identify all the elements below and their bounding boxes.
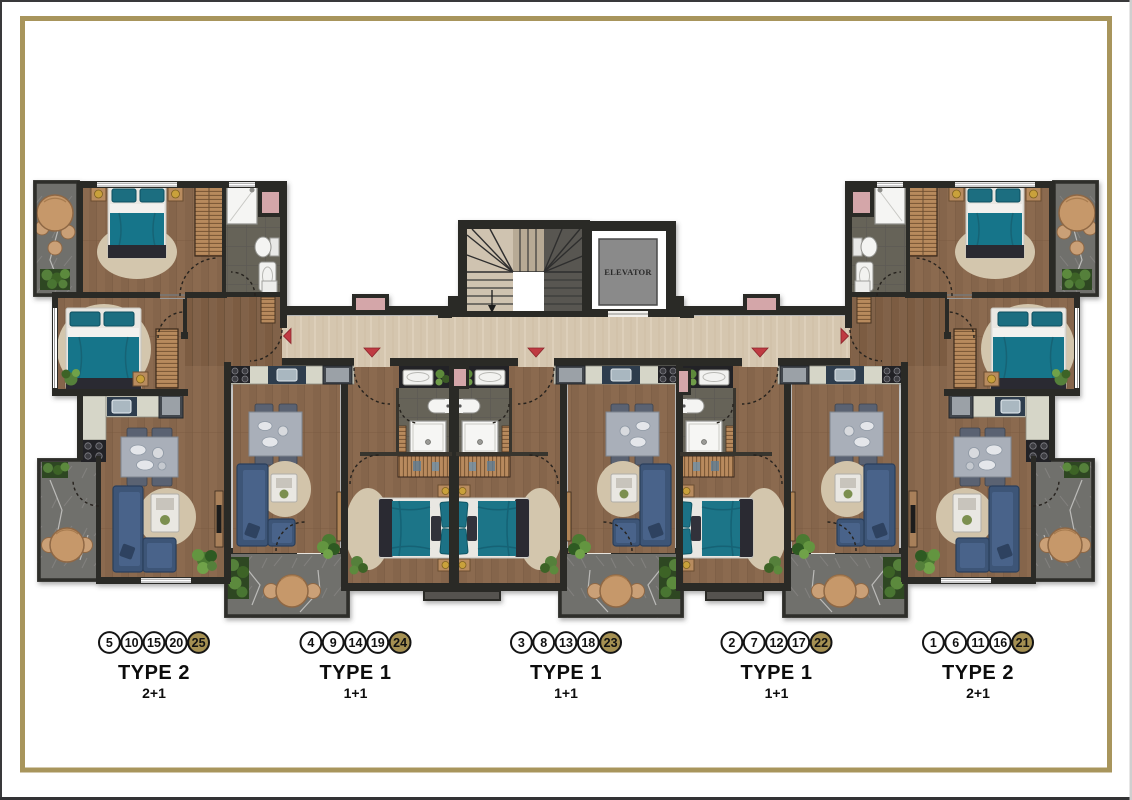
svg-text:19: 19: [371, 636, 385, 650]
svg-text:TYPE 1: TYPE 1: [530, 662, 602, 684]
svg-text:ELEVATOR: ELEVATOR: [604, 267, 652, 277]
svg-text:TYPE 2: TYPE 2: [942, 662, 1014, 684]
svg-text:1+1: 1+1: [344, 685, 368, 701]
svg-text:9: 9: [330, 636, 337, 650]
svg-text:11: 11: [971, 636, 984, 650]
svg-text:21: 21: [1016, 636, 1030, 650]
svg-text:1+1: 1+1: [765, 685, 789, 701]
svg-text:2: 2: [728, 636, 735, 650]
svg-text:5: 5: [106, 636, 113, 650]
svg-text:10: 10: [125, 636, 139, 650]
svg-text:TYPE 1: TYPE 1: [741, 662, 813, 684]
svg-text:22: 22: [814, 636, 828, 650]
svg-text:8: 8: [540, 636, 547, 650]
svg-text:23: 23: [604, 636, 618, 650]
svg-text:14: 14: [349, 636, 363, 650]
svg-text:1+1: 1+1: [554, 685, 578, 701]
svg-text:15: 15: [147, 636, 161, 650]
svg-text:TYPE 1: TYPE 1: [320, 662, 392, 684]
svg-text:20: 20: [169, 636, 183, 650]
svg-text:24: 24: [393, 636, 407, 650]
svg-text:13: 13: [559, 636, 573, 650]
svg-text:2+1: 2+1: [966, 685, 990, 701]
svg-text:18: 18: [581, 636, 595, 650]
svg-text:16: 16: [993, 636, 1007, 650]
svg-text:17: 17: [792, 636, 806, 650]
svg-text:25: 25: [192, 636, 206, 650]
svg-text:12: 12: [770, 636, 784, 650]
svg-text:TYPE 2: TYPE 2: [118, 662, 190, 684]
svg-text:3: 3: [518, 636, 525, 650]
svg-text:2+1: 2+1: [142, 685, 166, 701]
svg-text:7: 7: [751, 636, 758, 650]
svg-text:1: 1: [930, 636, 937, 650]
svg-text:6: 6: [952, 636, 959, 650]
svg-text:4: 4: [307, 636, 314, 650]
